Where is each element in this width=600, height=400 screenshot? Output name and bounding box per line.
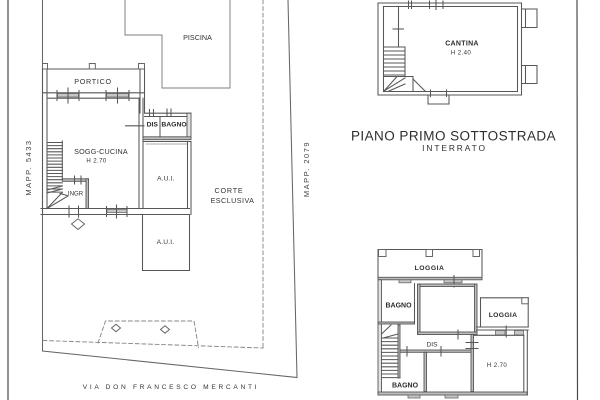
svg-text:SOGG-CUCINA: SOGG-CUCINA — [74, 147, 128, 156]
svg-text:INGR: INGR — [68, 191, 84, 198]
svg-text:A.U.I.: A.U.I. — [157, 239, 175, 246]
svg-text:CANTINA: CANTINA — [445, 41, 479, 48]
svg-text:BAGNO: BAGNO — [392, 383, 419, 390]
svg-text:LOGGIA: LOGGIA — [415, 265, 445, 272]
svg-text:BAGNO: BAGNO — [161, 121, 186, 128]
svg-text:MAPP. 5433: MAPP. 5433 — [24, 139, 33, 195]
svg-text:DIS: DIS — [427, 342, 439, 349]
svg-text:MAPP. 2079: MAPP. 2079 — [302, 141, 311, 197]
svg-text:H 2.70: H 2.70 — [487, 362, 508, 369]
svg-text:BAGNO: BAGNO — [385, 303, 412, 310]
svg-text:VIA DON FRANCESCO MERCANTI: VIA DON FRANCESCO MERCANTI — [83, 384, 259, 391]
svg-text:CORTE: CORTE — [214, 186, 243, 195]
svg-text:PORTICO: PORTICO — [74, 77, 112, 86]
svg-text:PISCINA: PISCINA — [183, 33, 212, 42]
svg-text:ESCLUSIVA: ESCLUSIVA — [211, 196, 255, 205]
svg-text:H 2.40: H 2.40 — [451, 50, 472, 57]
svg-text:PIANO PRIMO SOTTOSTRADA: PIANO PRIMO SOTTOSTRADA — [351, 129, 556, 144]
svg-text:LOGGIA: LOGGIA — [489, 312, 518, 319]
svg-text:INTERRATO: INTERRATO — [422, 143, 487, 153]
svg-text:H 2.70: H 2.70 — [86, 158, 107, 165]
svg-text:DIS: DIS — [147, 121, 159, 128]
svg-text:A.U.I.: A.U.I. — [157, 176, 175, 183]
